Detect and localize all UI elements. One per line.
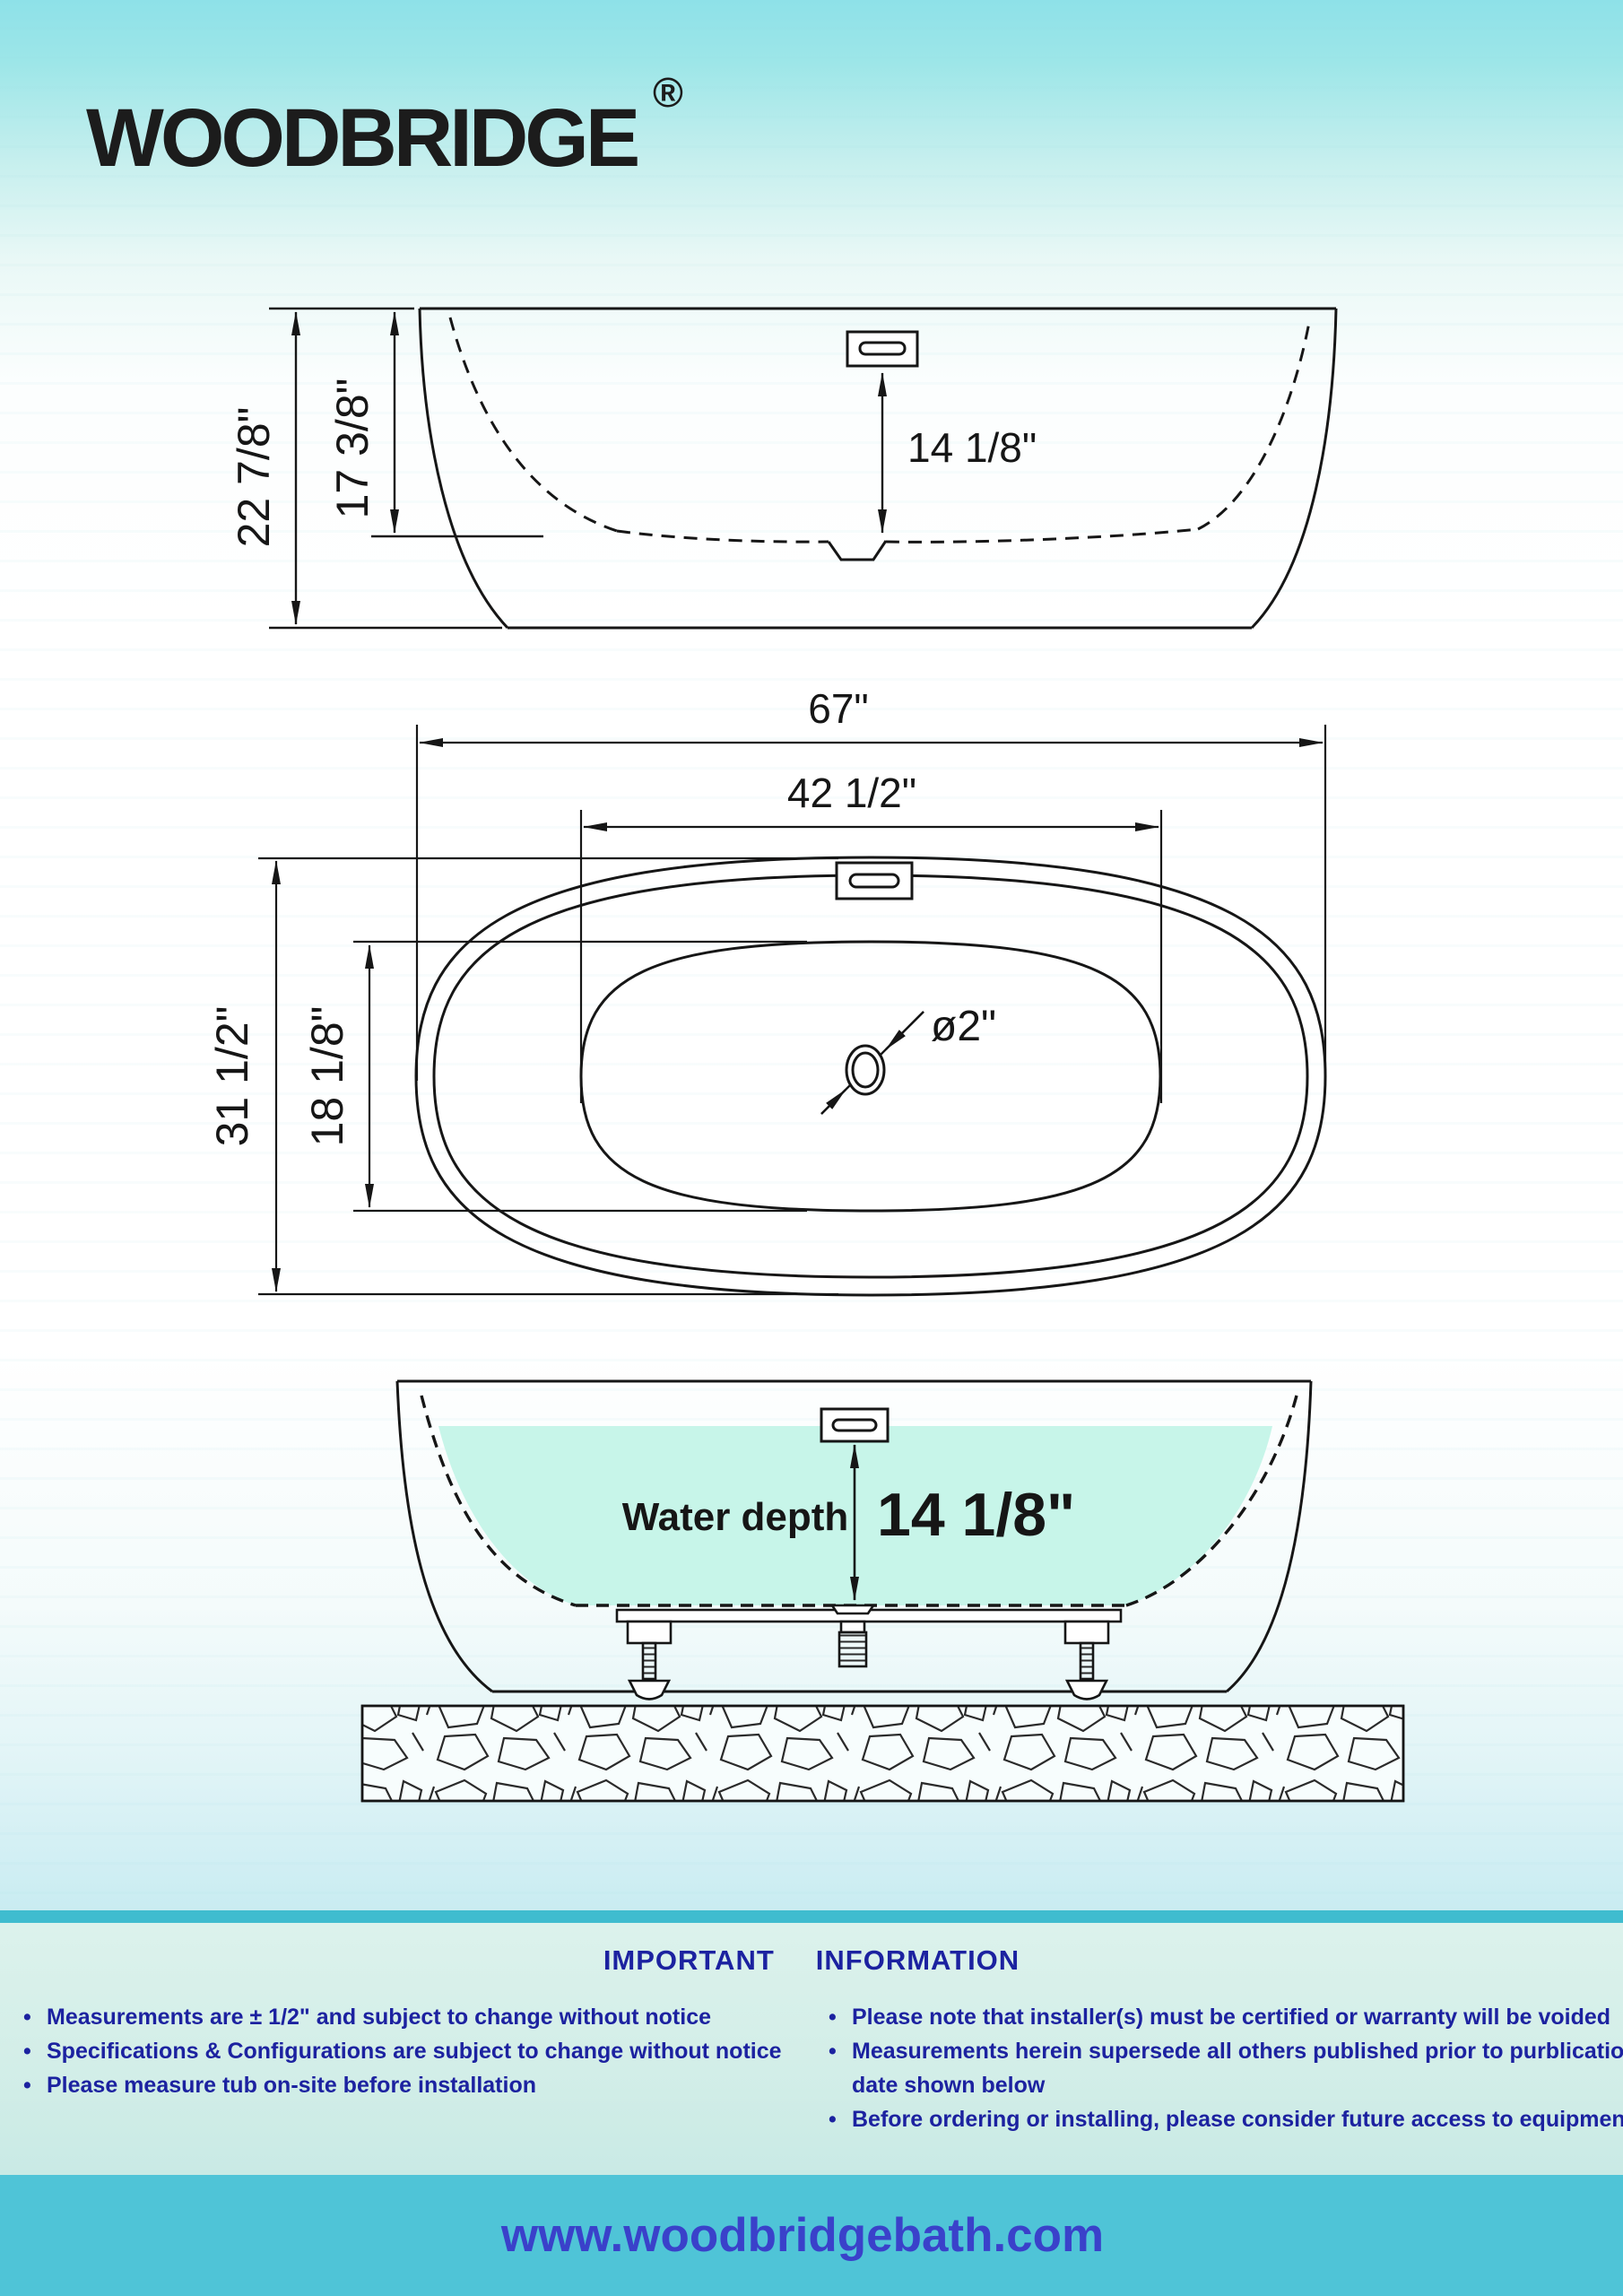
- teal-divider-band: [0, 1910, 1623, 1923]
- list-item: •Please measure tub on-site before insta…: [23, 2068, 812, 2102]
- top-overall-length-label: 67": [808, 685, 869, 732]
- bullet-icon: •: [23, 2068, 47, 2102]
- top-view-diagram: 67" 42 1/2" 31 1/2" 18 1/8" ø2": [207, 685, 1325, 1295]
- bullet-text: Before ordering or installing, please co…: [852, 2107, 1623, 2132]
- technical-drawing-svg: 22 7/8" 17 3/8" 14 1/8": [0, 0, 1623, 1910]
- foot-right: [1067, 1681, 1107, 1700]
- bullet-text: Measurements herein supersede all others…: [852, 2039, 1623, 2064]
- top-drain-arrow-upper: [886, 1012, 924, 1049]
- top-drain-diameter-label: ø2": [931, 1003, 996, 1050]
- list-item-continuation: date shown below: [829, 2068, 1618, 2102]
- website-url: www.woodbridgebath.com: [501, 2208, 1104, 2263]
- info-title: IMPORTANT INFORMATION: [0, 1944, 1623, 1977]
- side-overall-height-ticks: [269, 309, 502, 628]
- top-drain: [846, 1046, 884, 1094]
- leveling-rod-left: [643, 1643, 655, 1679]
- section-overflow-fixture: [821, 1409, 888, 1441]
- bullet-icon: •: [829, 2102, 852, 2136]
- side-tub-right-wall: [1252, 309, 1336, 628]
- section-drain-assembly: [832, 1605, 873, 1666]
- bullet-icon: •: [829, 2034, 852, 2068]
- bullet-icon: •: [23, 2000, 47, 2034]
- list-item: •Before ordering or installing, please c…: [829, 2102, 1618, 2136]
- section-view-diagram: Water depth 14 1/8": [362, 1381, 1403, 1801]
- drawing-area: WOODBRIDGE ®: [0, 0, 1623, 1910]
- side-tub-left-wall: [420, 309, 508, 628]
- bullet-text: Please note that installer(s) must be ce…: [852, 2005, 1610, 2030]
- bullet-icon: •: [829, 2000, 852, 2034]
- section-floor-slab: [362, 1706, 1403, 1801]
- side-overflow-fixture: [847, 332, 917, 366]
- foot-left: [629, 1681, 669, 1700]
- side-interior-height-label: 17 3/8": [327, 378, 378, 519]
- spec-sheet-page: WOODBRIDGE ®: [0, 0, 1623, 2296]
- leveling-rod-right: [1081, 1643, 1093, 1679]
- list-item: •Measurements herein supersede all other…: [829, 2034, 1618, 2068]
- bullet-text: Measurements are ± 1/2" and subject to c…: [47, 2005, 711, 2030]
- info-title-word-information: INFORMATION: [816, 1944, 1020, 1977]
- info-right-column: •Please note that installer(s) must be c…: [829, 2000, 1618, 2136]
- info-left-column: •Measurements are ± 1/2" and subject to …: [23, 2000, 812, 2102]
- water-depth-value: 14 1/8": [877, 1481, 1075, 1549]
- side-overall-height-label: 22 7/8": [229, 407, 279, 548]
- bullet-text: Specifications & Configurations are subj…: [47, 2039, 782, 2064]
- section-support-frame: [617, 1610, 1121, 1700]
- side-drain-recess: [829, 541, 886, 560]
- water-depth-label: Water depth: [622, 1495, 849, 1539]
- top-overflow-fixture: [837, 863, 912, 899]
- info-title-word-important: IMPORTANT: [603, 1944, 775, 1977]
- top-interior-width-label: 18 1/8": [302, 1006, 352, 1147]
- top-interior-length-label: 42 1/2": [787, 770, 916, 816]
- list-item: •Please note that installer(s) must be c…: [829, 2000, 1618, 2034]
- list-item: •Measurements are ± 1/2" and subject to …: [23, 2000, 812, 2034]
- bullet-text: Please measure tub on-site before instal…: [47, 2073, 536, 2098]
- side-view-diagram: 22 7/8" 17 3/8" 14 1/8": [229, 309, 1336, 628]
- important-information-panel: IMPORTANT INFORMATION •Measurements are …: [0, 1923, 1623, 2175]
- list-item: •Specifications & Configurations are sub…: [23, 2034, 812, 2068]
- bullet-icon: •: [23, 2034, 47, 2068]
- footer-bar: www.woodbridgebath.com: [0, 2175, 1623, 2296]
- top-overall-width-label: 31 1/2": [207, 1006, 257, 1147]
- top-drain-arrow-lower: [821, 1090, 846, 1114]
- side-depth-label: 14 1/8": [907, 424, 1037, 471]
